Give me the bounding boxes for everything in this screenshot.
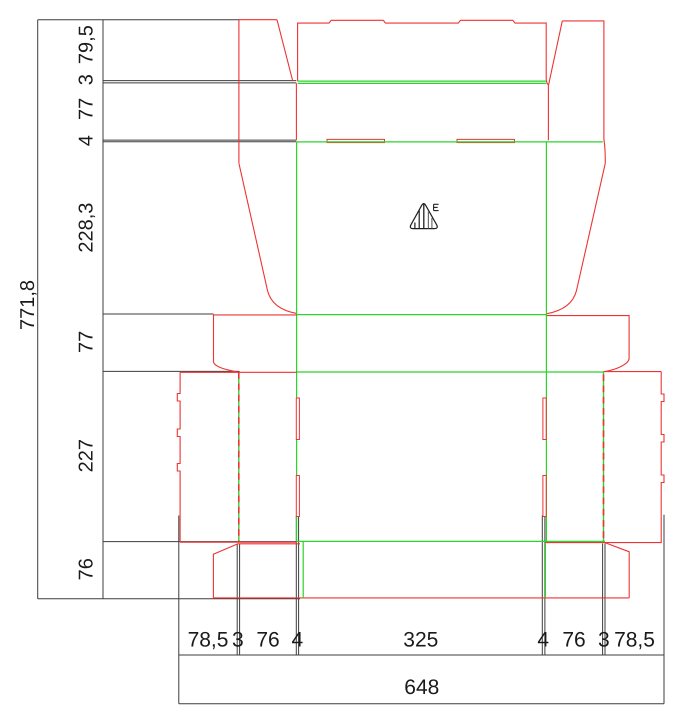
svg-text:77: 77 — [76, 331, 98, 353]
svg-text:771,8: 771,8 — [17, 280, 39, 330]
svg-text:76: 76 — [562, 629, 585, 652]
svg-text:325: 325 — [403, 629, 438, 652]
svg-text:3: 3 — [598, 629, 610, 652]
svg-text:77: 77 — [76, 98, 98, 120]
svg-text:76: 76 — [76, 558, 98, 580]
svg-text:648: 648 — [404, 676, 439, 699]
svg-text:3: 3 — [76, 74, 98, 85]
svg-text:227: 227 — [76, 439, 98, 472]
svg-text:78,5: 78,5 — [188, 629, 229, 652]
svg-text:79,5: 79,5 — [76, 25, 98, 64]
svg-text:228,3: 228,3 — [76, 203, 98, 253]
svg-text:4: 4 — [76, 135, 98, 146]
svg-text:76: 76 — [256, 629, 279, 652]
svg-text:4: 4 — [537, 629, 549, 652]
svg-text:4: 4 — [292, 629, 304, 652]
svg-text:78,5: 78,5 — [614, 629, 655, 652]
svg-text:3: 3 — [232, 629, 244, 652]
